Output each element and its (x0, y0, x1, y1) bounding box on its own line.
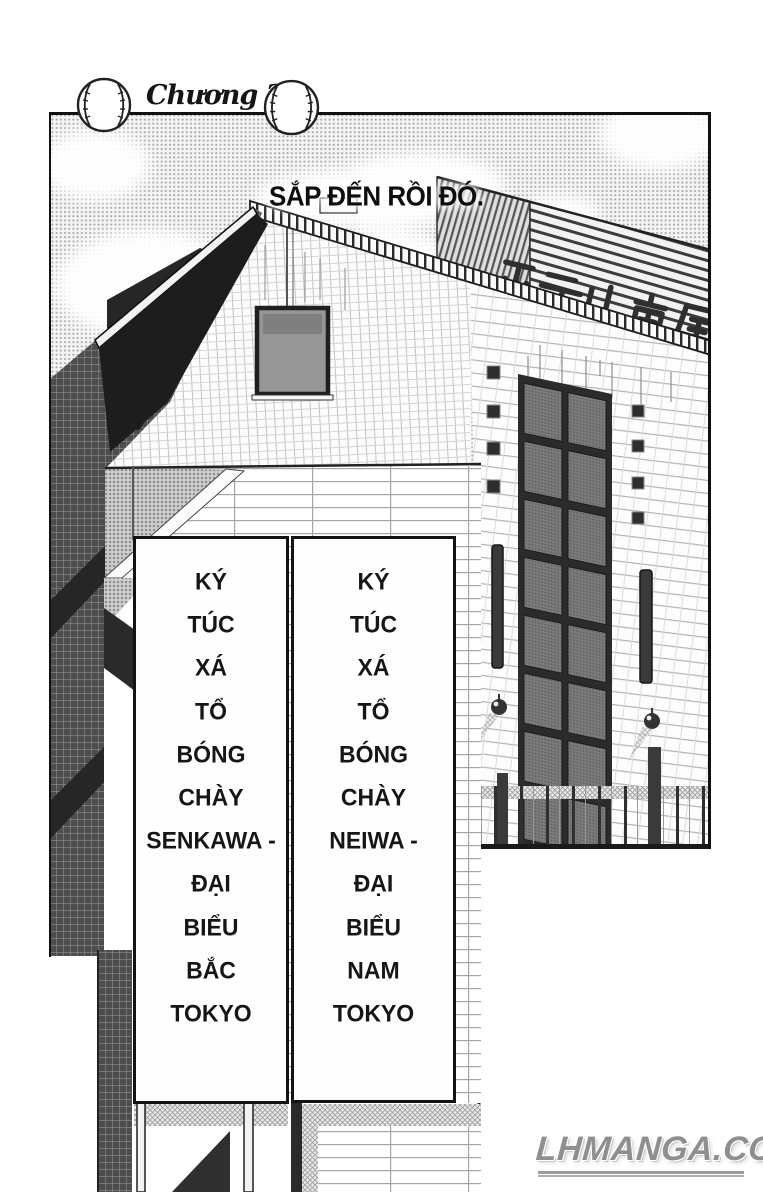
sign-line: XÁ (358, 646, 390, 691)
sign-line: CHÀY (178, 775, 243, 820)
sign-line: TOKYO (170, 991, 251, 1036)
watermark-underline (538, 1171, 744, 1178)
baseball-icon-right (262, 78, 321, 137)
sign-board-neiwa: KÝTÚCXÁTỔBÓNGCHÀYNEIWA -ĐẠIBIỂUNAMTOKYO (291, 536, 456, 1103)
baseball-icon-left (75, 76, 133, 134)
sign-line: SENKAWA - (146, 818, 276, 863)
sign-line: TÚC (350, 602, 397, 647)
square-window (252, 308, 333, 400)
sign-line: BIỂU (184, 905, 239, 950)
caption-text: SẮP ĐẾN RỒI ĐÓ. (269, 180, 484, 213)
sign-line: BIỂU (346, 905, 401, 950)
sign-line: NAM (347, 948, 399, 993)
sign-line: TỔ (195, 689, 227, 734)
sign-line: KÝ (358, 559, 390, 604)
sign-line: KÝ (195, 559, 227, 604)
sign-line: BÓNG (177, 732, 246, 777)
sign-line: TỔ (358, 689, 390, 734)
sign-line: ĐẠI (354, 861, 394, 906)
manga-page: Chương 2 : SẮP ĐẾN RỒI ĐÓ. KÝTÚCXÁTỔBÓNG… (0, 0, 763, 1200)
sign-line: ĐẠI (191, 861, 231, 906)
sign-line: TOKYO (333, 991, 414, 1036)
sign-line: NEIWA - (329, 818, 418, 863)
sign-line: BÓNG (339, 732, 408, 777)
sign-line: TÚC (187, 602, 234, 647)
dormitory-right-face (470, 273, 711, 1192)
sign-line: XÁ (195, 646, 227, 691)
watermark-text: LHMANGA.COM (535, 1130, 750, 1169)
sign-line: BẮC (186, 948, 236, 993)
sign-line: CHÀY (341, 775, 406, 820)
sign-board-senkawa: KÝTÚCXÁTỔBÓNGCHÀYSENKAWA -ĐẠIBIỂUBẮCTOKY… (133, 536, 289, 1104)
